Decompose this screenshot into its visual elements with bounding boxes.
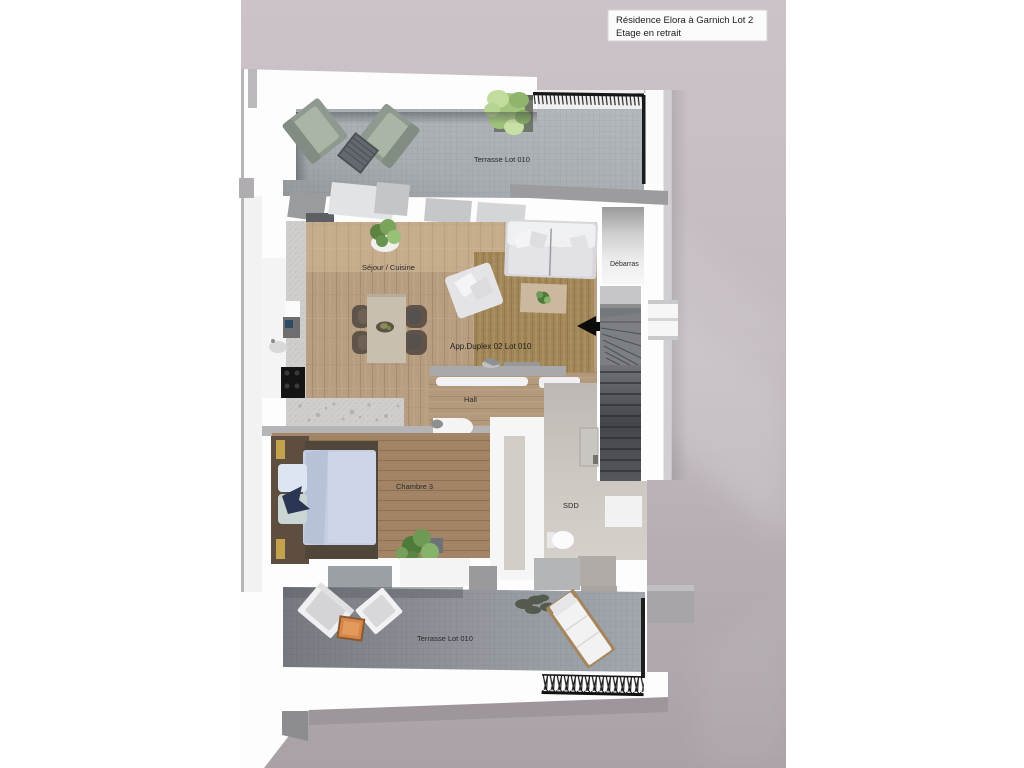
svg-text:Débarras: Débarras (610, 261, 639, 268)
svg-text:Terrasse Lot 010: Terrasse Lot 010 (417, 634, 473, 643)
svg-text:SDD: SDD (563, 501, 579, 510)
svg-text:Séjour / Cuisine: Séjour / Cuisine (362, 263, 415, 272)
svg-text:Résidence Elora à Garnich Lot: Résidence Elora à Garnich Lot 2 (616, 15, 753, 26)
svg-text:Terrasse Lot 010: Terrasse Lot 010 (474, 155, 530, 164)
svg-text:Chambre 3: Chambre 3 (396, 482, 433, 491)
svg-text:App.Duplex 02 Lot 010: App.Duplex 02 Lot 010 (450, 342, 532, 351)
svg-text:Hall: Hall (464, 395, 477, 404)
svg-text:Etage en retrait: Etage en retrait (616, 28, 681, 39)
